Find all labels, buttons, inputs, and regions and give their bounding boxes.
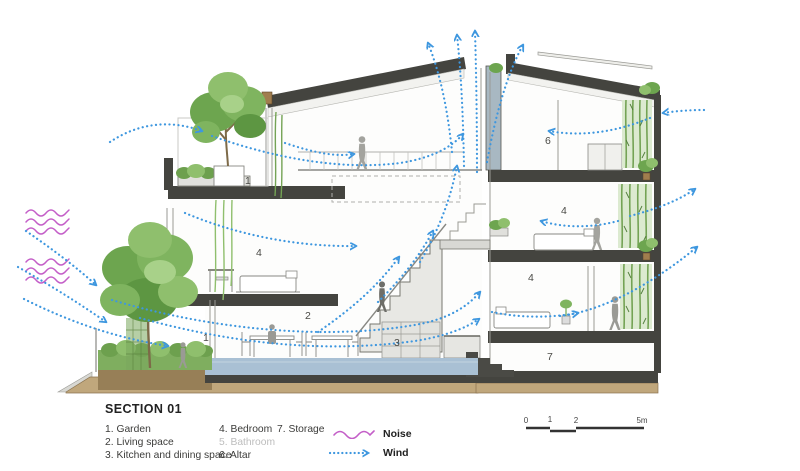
- legend-item-kitchen: 3. Kitchen and dining space: [105, 450, 232, 463]
- building-structure: [96, 52, 661, 383]
- wind-arrow-icon: [328, 447, 380, 459]
- legend-item-living: 2. Living space: [105, 437, 232, 450]
- scale-tick-5m: 5m: [636, 416, 647, 425]
- room-label-bedroom-lower: 4: [528, 272, 534, 284]
- noise-legend-label: Noise: [383, 428, 412, 440]
- scale-tick-1: 1: [548, 415, 553, 424]
- scale-tick-0: 0: [524, 416, 529, 425]
- room-label-kitchen: 3: [394, 337, 400, 349]
- noise-wave-icon: [332, 427, 378, 439]
- wind-legend-label: Wind: [383, 447, 409, 459]
- scale-bar: 0 1 2 5m: [522, 415, 662, 437]
- legend-item-storage: 7. Storage: [277, 424, 325, 437]
- room-label-storage: 7: [547, 351, 553, 363]
- legend-column-3: 7. Storage: [277, 424, 325, 437]
- legend-item-altar: 6. Altar: [219, 450, 275, 463]
- legend-item-bedroom: 4. Bedroom: [219, 424, 275, 437]
- section-diagram-page: 1 1 2 3 4 4 4 6 7 SECTION 01 1. Garden 2…: [0, 0, 800, 471]
- legend-item-garden: 1. Garden: [105, 424, 232, 437]
- legend-column-2: 4. Bedroom 5. Bathroom 6. Altar: [219, 424, 275, 462]
- room-label-living: 2: [305, 310, 311, 322]
- legend-column-1: 1. Garden 2. Living space 3. Kitchen and…: [105, 424, 232, 462]
- room-label-bedroom-upper: 4: [561, 205, 567, 217]
- room-label-altar: 6: [545, 135, 551, 147]
- legend-item-bathroom: 5. Bathroom: [219, 437, 275, 450]
- room-label-garden-terrace: 1: [245, 175, 251, 187]
- scale-tick-2: 2: [574, 416, 579, 425]
- section-drawing: 1 1 2 3 4 4 4 6 7: [0, 0, 800, 400]
- room-label-bedroom-left: 4: [256, 247, 262, 259]
- room-label-garden-ground: 1: [203, 332, 209, 344]
- section-title: SECTION 01: [105, 402, 182, 416]
